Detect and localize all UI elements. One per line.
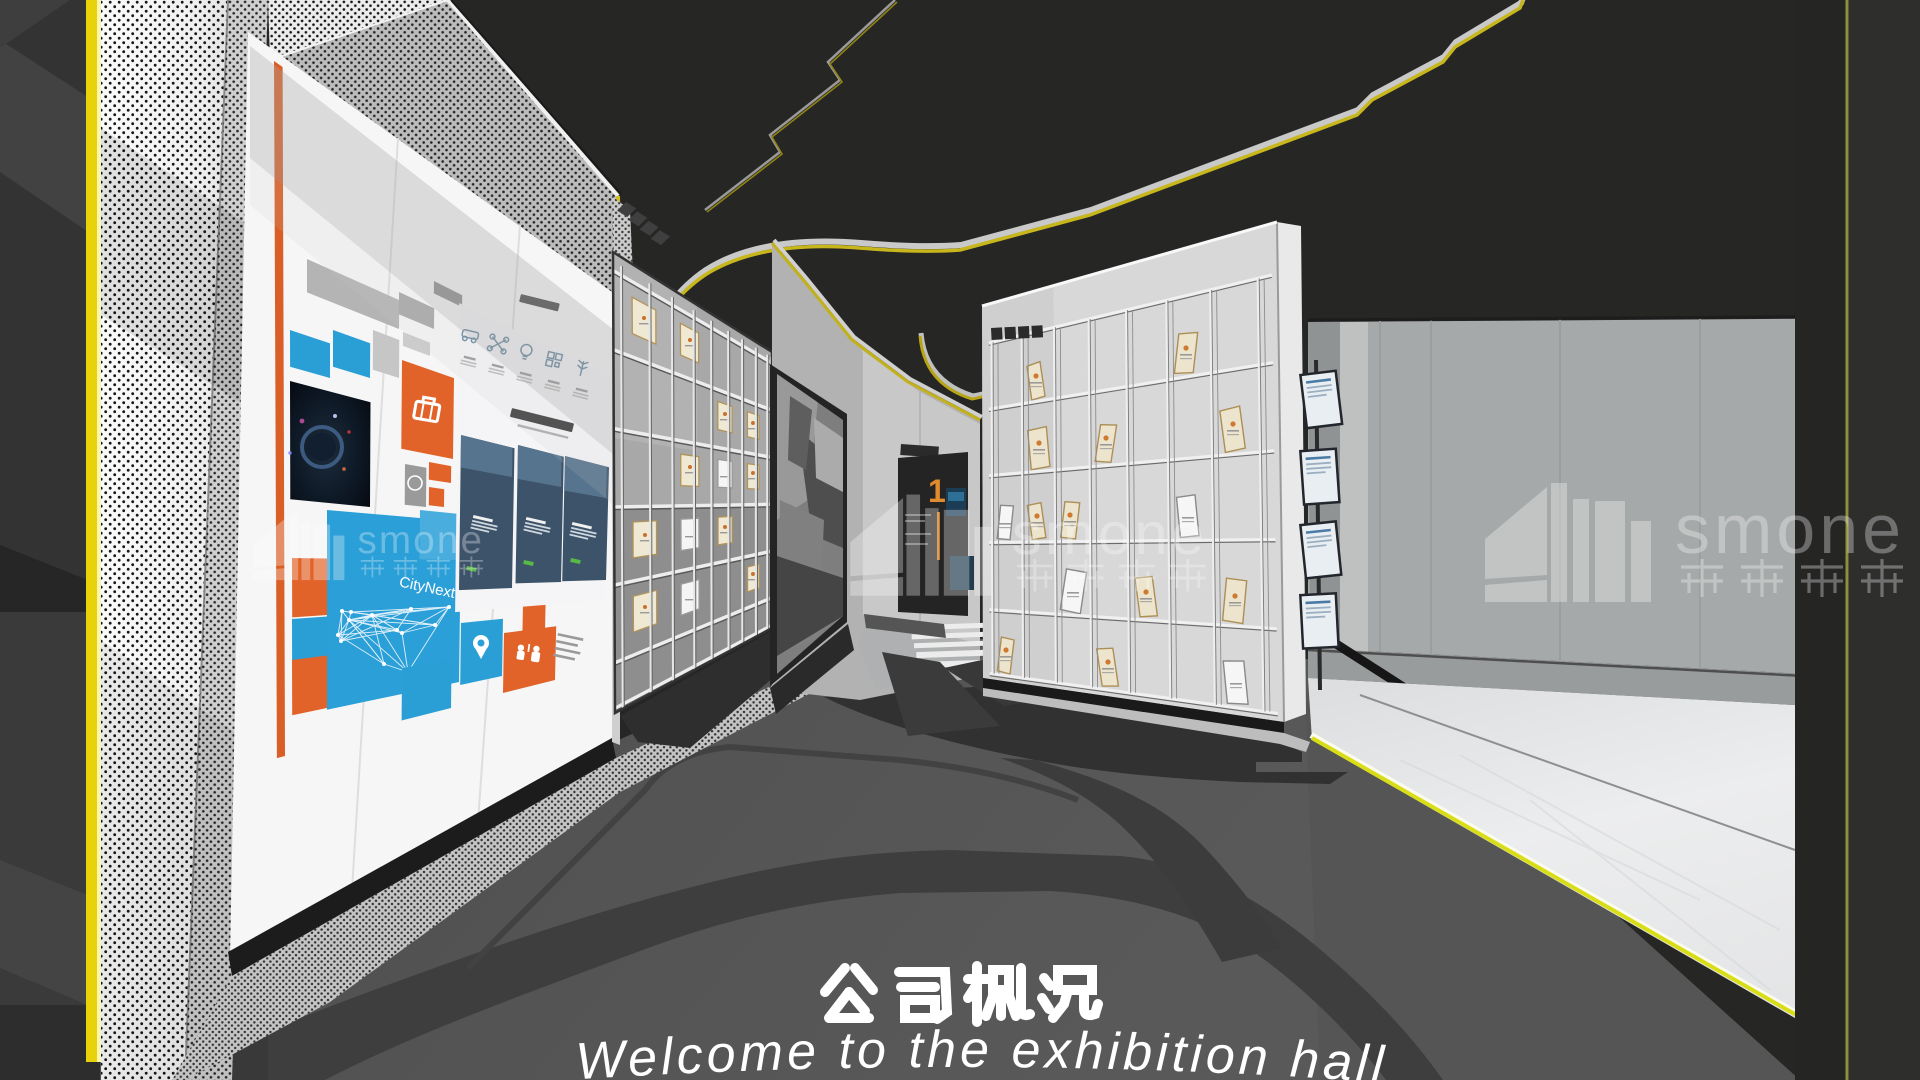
svg-text:smone: smone	[1012, 500, 1208, 567]
svg-text:smone: smone	[1675, 490, 1905, 568]
svg-text:1: 1	[928, 473, 946, 509]
svg-text:Welcome to the exhibition hall: Welcome to the exhibition hall	[574, 1021, 1389, 1080]
svg-text:smone: smone	[358, 519, 485, 562]
